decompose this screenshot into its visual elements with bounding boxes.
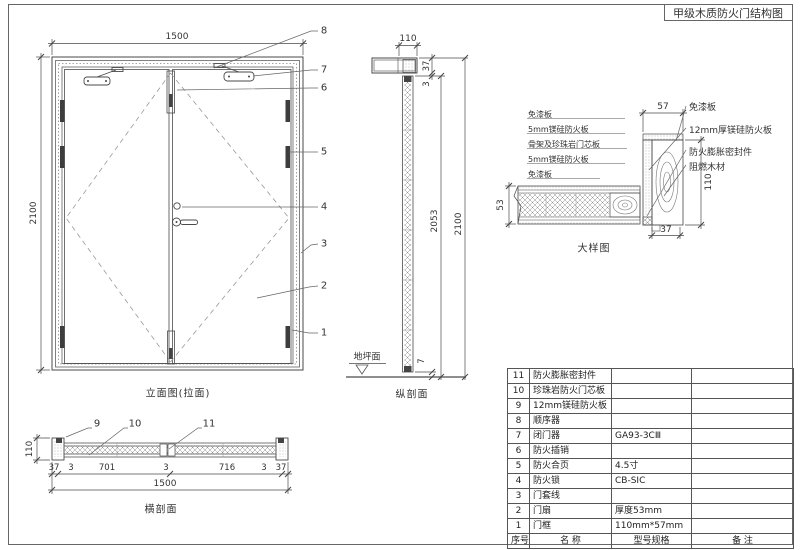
part-spec: 厚度53mm — [612, 504, 692, 519]
detail-leaders — [647, 106, 686, 216]
part-remark — [692, 384, 794, 399]
vsec-dim-2053-text: 2053 — [430, 210, 440, 233]
part-name: 顺序器 — [530, 414, 612, 429]
part-spec: GA93-3CⅢ — [612, 429, 692, 444]
door-leaf-left — [65, 70, 170, 364]
callout-1: 1 — [321, 328, 327, 339]
table-row: 8顺序器 — [508, 414, 794, 429]
table-row: 1门框110mm*57mm — [508, 519, 794, 534]
detail-dim-57-text: 57 — [657, 102, 668, 112]
vsec-dim-110-text: 110 — [399, 34, 416, 44]
hsec-chain-3a: 3 — [68, 463, 73, 473]
ground-level-label: 地坪面 — [353, 350, 380, 363]
callout-8: 8 — [321, 26, 327, 37]
door-frame-outer — [52, 57, 303, 370]
drawing-sheet: 甲级木质防火门结构图 1500 2100 立面图(拉面) 8 7 6 5 4 3… — [0, 0, 800, 550]
hsec-chain-37l: 37 — [49, 463, 60, 473]
table-row: 11防火膨胀密封件 — [508, 369, 794, 384]
part-no: 11 — [508, 369, 530, 384]
callout-3: 3 — [321, 239, 327, 250]
part-no: 9 — [508, 399, 530, 414]
table-row: 912mm镁硅防火板 — [508, 399, 794, 414]
table-row: 2门扇厚度53mm — [508, 504, 794, 519]
part-name: 门框 — [530, 519, 612, 534]
hsec-chain-716: 716 — [219, 463, 235, 473]
part-remark — [692, 429, 794, 444]
vertical-section — [346, 42, 468, 380]
table-row: 3门套线 — [508, 489, 794, 504]
part-remark — [692, 414, 794, 429]
part-no: 5 — [508, 459, 530, 474]
table-row: 4防火锁CB-SIC — [508, 474, 794, 489]
part-name: 闭门器 — [530, 429, 612, 444]
part-spec — [612, 414, 692, 429]
detail-right-label-2: 12mm厚镁硅防火板 — [689, 123, 772, 136]
detail-caption: 大样图 — [578, 240, 611, 255]
callout-10: 10 — [129, 419, 142, 430]
parts-table: 11防火膨胀密封件 10珍珠岩防火门芯板 912mm镁硅防火板 8顺序器 7闭门… — [507, 368, 794, 549]
header-remark: 备 注 — [692, 534, 794, 549]
detail-dim-53-text: 53 — [496, 199, 506, 210]
part-spec: 4.5寸 — [612, 459, 692, 474]
part-no: 1 — [508, 519, 530, 534]
hinges — [60, 100, 290, 348]
vsec-dim-2100-text: 2100 — [454, 213, 464, 236]
callout-11: 11 — [203, 419, 216, 430]
table-row: 10珍珠岩防火门芯板 — [508, 384, 794, 399]
part-remark — [692, 519, 794, 534]
part-name: 防火膨胀密封件 — [530, 369, 612, 384]
callout-7: 7 — [321, 65, 327, 76]
fire-lock — [173, 203, 198, 226]
part-spec — [612, 399, 692, 414]
hsec-chain-37r: 37 — [276, 463, 287, 473]
intumescent-seal — [643, 217, 652, 225]
hsec-dim-110-text: 110 — [25, 441, 35, 457]
part-remark — [692, 369, 794, 384]
vsec-dim-3-text: 3 — [422, 81, 432, 86]
part-remark — [692, 459, 794, 474]
detail-right-label-4: 阻燃木材 — [689, 160, 725, 173]
hsec-total-dim-text: 1500 — [154, 479, 177, 489]
header-no: 序号 — [508, 534, 530, 549]
callout-4: 4 — [321, 202, 327, 213]
hsec-chain-701: 701 — [99, 463, 115, 473]
hsec-chain-dim — [48, 462, 292, 478]
part-spec — [612, 384, 692, 399]
detail-left-label-4: 5mm镁硅防火板 — [528, 154, 589, 165]
board-12mm — [643, 140, 652, 225]
part-spec — [612, 444, 692, 459]
door-frame-inner — [62, 67, 293, 364]
part-no: 10 — [508, 384, 530, 399]
detail-left-label-5: 免漆板 — [528, 169, 552, 180]
elevation-width-dim-text: 1500 — [166, 32, 189, 42]
break-line — [514, 186, 521, 224]
door-leaf-right — [173, 70, 292, 364]
part-remark — [692, 399, 794, 414]
vsec-dim-110 — [395, 42, 421, 56]
part-no: 7 — [508, 429, 530, 444]
part-name: 12mm镁硅防火板 — [530, 399, 612, 414]
flush-bolt-top — [167, 71, 175, 113]
leaf-edge-lumber — [610, 193, 640, 217]
detail-left-label-2: 5mm镁硅防火板 — [528, 124, 589, 135]
detail-dim-37-text: 37 — [660, 225, 671, 235]
door-closer-left — [84, 68, 123, 86]
part-no: 3 — [508, 489, 530, 504]
callout-2: 2 — [321, 281, 327, 292]
detail-leaf-section — [514, 186, 640, 224]
header-name: 名 称 — [530, 534, 612, 549]
detail-left-label-3: 骨架及珍珠岩门芯板 — [528, 139, 600, 150]
hsec-caption: 横剖面 — [145, 501, 178, 516]
part-name: 门扇 — [530, 504, 612, 519]
elevation-height-dim-text: 2100 — [29, 202, 39, 225]
part-name: 珍珠岩防火门芯板 — [530, 384, 612, 399]
part-spec: CB-SIC — [612, 474, 692, 489]
elevation-view — [36, 31, 318, 374]
detail-dim-110-text: 110 — [704, 173, 714, 190]
detail-frame-section — [643, 134, 683, 231]
level-triangle-icon — [356, 365, 368, 374]
hsec-jamb-left — [52, 438, 64, 460]
header-spec: 型号规格 — [612, 534, 692, 549]
vsec-dim-7-text: 7 — [417, 358, 427, 363]
vsec-caption: 纵剖面 — [396, 386, 429, 401]
part-no: 2 — [508, 504, 530, 519]
table-header-row: 序号名 称型号规格备 注 — [508, 534, 794, 549]
callout-9: 9 — [94, 419, 100, 430]
detail-right-label-3: 防火膨胀密封件 — [689, 145, 752, 158]
part-name: 防火合页 — [530, 459, 612, 474]
part-name: 防火锁 — [530, 474, 612, 489]
door-closer-right — [214, 64, 254, 82]
part-remark — [692, 504, 794, 519]
detail-right-label-1: 免漆板 — [689, 100, 716, 113]
part-remark — [692, 444, 794, 459]
part-no: 4 — [508, 474, 530, 489]
hsec-chain-3b: 3 — [163, 463, 168, 473]
drawing-title: 甲级木质防火门结构图 — [673, 5, 783, 21]
vsec-dim-37-text: 37 — [422, 61, 432, 72]
part-remark — [692, 474, 794, 489]
part-remark — [692, 489, 794, 504]
callout-5: 5 — [321, 147, 327, 158]
door-swing-dashed — [66, 73, 289, 362]
part-no: 6 — [508, 444, 530, 459]
part-name: 防火插销 — [530, 444, 612, 459]
detail-left-label-1: 免漆板 — [528, 109, 552, 120]
part-spec — [612, 489, 692, 504]
hsec-jamb-right — [276, 438, 288, 460]
hsec-chain-3c: 3 — [261, 463, 266, 473]
elevation-caption: 立面图(拉面) — [146, 385, 211, 400]
table-row: 5防火合页4.5寸 — [508, 459, 794, 474]
part-name: 门套线 — [530, 489, 612, 504]
hsec-dim-110 — [33, 434, 50, 464]
vsec-frame-head — [372, 58, 417, 73]
table-row: 7闭门器GA93-3CⅢ — [508, 429, 794, 444]
part-spec: 110mm*57mm — [612, 519, 692, 534]
part-spec — [612, 369, 692, 384]
vsec-door-leaf — [403, 76, 414, 372]
table-row: 6防火插销 — [508, 444, 794, 459]
part-no: 8 — [508, 414, 530, 429]
callout-6: 6 — [321, 83, 327, 94]
